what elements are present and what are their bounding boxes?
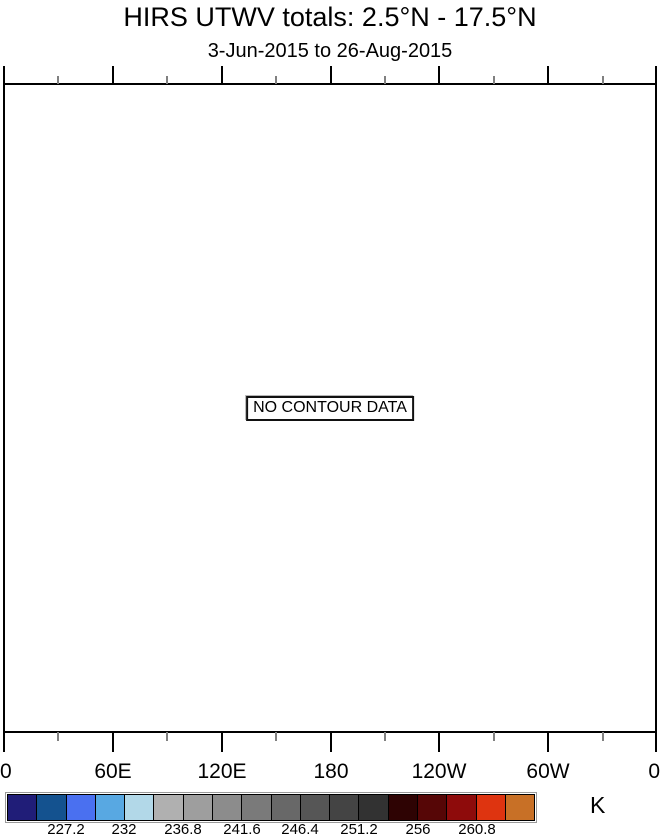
bottom-axis-major-tick — [221, 732, 223, 752]
colorbar-segment — [66, 794, 96, 821]
colorbar-tick-label: 236.8 — [164, 821, 202, 838]
colorbar-segment — [388, 794, 418, 821]
colorbar-tick-label: 260.8 — [458, 821, 496, 838]
colorbar-segment — [183, 794, 213, 821]
colorbar-tick-label: 227.2 — [47, 821, 85, 838]
top-axis-major-tick — [655, 66, 657, 84]
bottom-axis-major-tick — [330, 732, 332, 752]
top-axis-major-tick — [438, 66, 440, 84]
top-axis-major-tick — [221, 66, 223, 84]
colorbar-segment — [476, 794, 506, 821]
bottom-axis-minor-tick — [493, 732, 495, 741]
bottom-axis-minor-tick — [384, 732, 386, 741]
top-axis-major-tick — [330, 66, 332, 84]
bottom-axis-major-tick — [3, 732, 5, 752]
colorbar — [7, 794, 535, 821]
x-axis-tick-label: 120W — [412, 760, 467, 784]
colorbar-tick-label: 256 — [405, 821, 430, 838]
colorbar-unit-label: K — [590, 792, 605, 819]
top-axis-minor-tick — [602, 76, 604, 84]
bottom-axis-minor-tick — [602, 732, 604, 741]
colorbar-segment — [153, 794, 183, 821]
x-axis-tick-label: 60W — [526, 760, 569, 784]
top-axis-major-tick — [3, 66, 5, 84]
x-axis-tick-label: 0 — [648, 760, 660, 784]
top-axis-major-tick — [112, 66, 114, 84]
colorbar-segment — [417, 794, 447, 821]
colorbar-segment — [271, 794, 301, 821]
x-axis-tick-label: 60E — [94, 760, 131, 784]
top-axis-major-tick — [547, 66, 549, 84]
colorbar-segment — [505, 794, 535, 821]
bottom-axis-major-tick — [112, 732, 114, 752]
colorbar-segment — [241, 794, 271, 821]
chart-subtitle: 3-Jun-2015 to 26-Aug-2015 — [0, 40, 660, 63]
top-axis-minor-tick — [57, 76, 59, 84]
bottom-axis-minor-tick — [166, 732, 168, 741]
top-axis-minor-tick — [384, 76, 386, 84]
colorbar-segment — [300, 794, 330, 821]
x-axis-tick-label: 0 — [0, 760, 12, 784]
bottom-axis-minor-tick — [275, 732, 277, 741]
bottom-axis-major-tick — [655, 732, 657, 752]
colorbar-tick-label: 232 — [111, 821, 136, 838]
top-axis-minor-tick — [275, 76, 277, 84]
bottom-axis-major-tick — [547, 732, 549, 752]
top-axis-minor-tick — [493, 76, 495, 84]
top-axis-minor-tick — [166, 76, 168, 84]
colorbar-segment — [124, 794, 154, 821]
bottom-axis-major-tick — [438, 732, 440, 752]
colorbar-tick-label: 246.4 — [281, 821, 319, 838]
colorbar-segment — [446, 794, 476, 821]
colorbar-tick-label: 241.6 — [223, 821, 261, 838]
colorbar-segment — [358, 794, 388, 821]
bottom-axis-minor-tick — [57, 732, 59, 741]
chart-title: HIRS UTWV totals: 2.5°N - 17.5°N — [0, 2, 660, 33]
x-axis-tick-label: 120E — [197, 760, 246, 784]
colorbar-segment — [212, 794, 242, 821]
x-axis-tick-label: 180 — [313, 760, 348, 784]
colorbar-segment — [36, 794, 66, 821]
colorbar-tick-label: 251.2 — [340, 821, 378, 838]
colorbar-segment — [7, 794, 37, 821]
no-contour-data-box: NO CONTOUR DATA — [246, 396, 414, 421]
colorbar-segment — [95, 794, 125, 821]
colorbar-segment — [329, 794, 359, 821]
